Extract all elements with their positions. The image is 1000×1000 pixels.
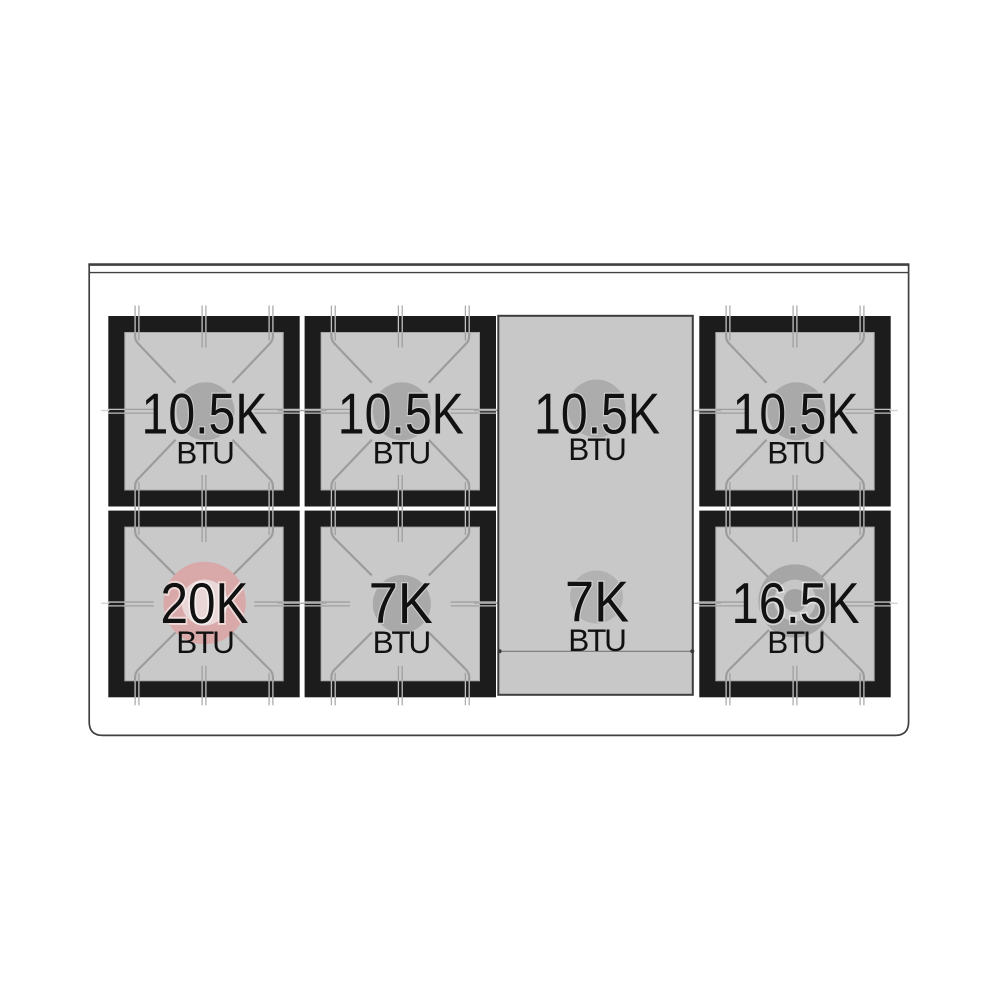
svg-text:BTU: BTU [373, 624, 430, 660]
svg-text:BTU: BTU [373, 434, 430, 470]
svg-text:BTU: BTU [568, 622, 625, 658]
svg-text:BTU: BTU [767, 434, 824, 470]
svg-text:BTU: BTU [176, 434, 233, 470]
svg-text:BTU: BTU [767, 624, 824, 660]
svg-text:BTU: BTU [568, 431, 625, 467]
svg-text:BTU: BTU [176, 624, 233, 660]
